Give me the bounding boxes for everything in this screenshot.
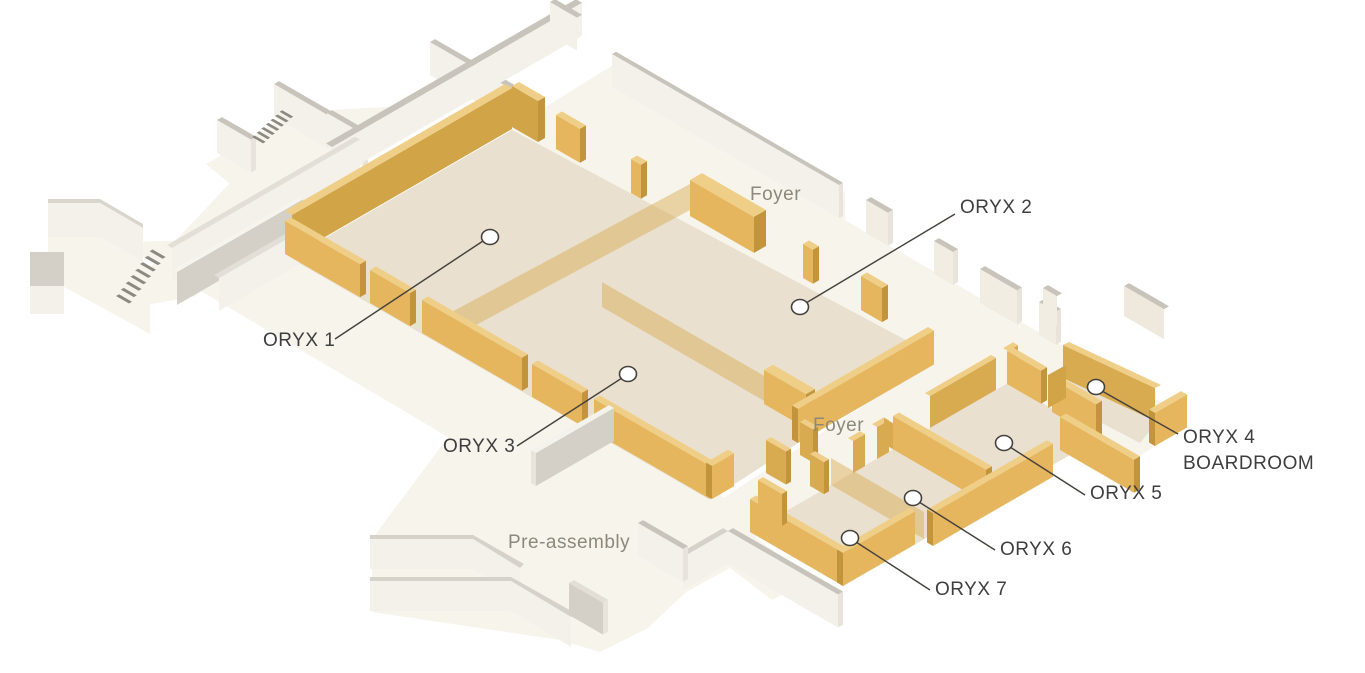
svg-text:Foyer: Foyer	[750, 184, 801, 205]
svg-text:ORYX 3: ORYX 3	[443, 436, 515, 457]
svg-text:ORYX 7: ORYX 7	[935, 579, 1007, 600]
svg-text:ORYX 2: ORYX 2	[960, 197, 1032, 218]
svg-text:ORYX 6: ORYX 6	[1000, 539, 1072, 560]
svg-text:ORYX 4: ORYX 4	[1183, 427, 1255, 448]
svg-text:ORYX 5: ORYX 5	[1090, 483, 1162, 504]
svg-text:ORYX 1: ORYX 1	[263, 330, 335, 351]
svg-text:BOARDROOM: BOARDROOM	[1183, 453, 1314, 474]
svg-text:Foyer: Foyer	[813, 415, 864, 436]
svg-text:Pre-assembly: Pre-assembly	[508, 532, 630, 553]
